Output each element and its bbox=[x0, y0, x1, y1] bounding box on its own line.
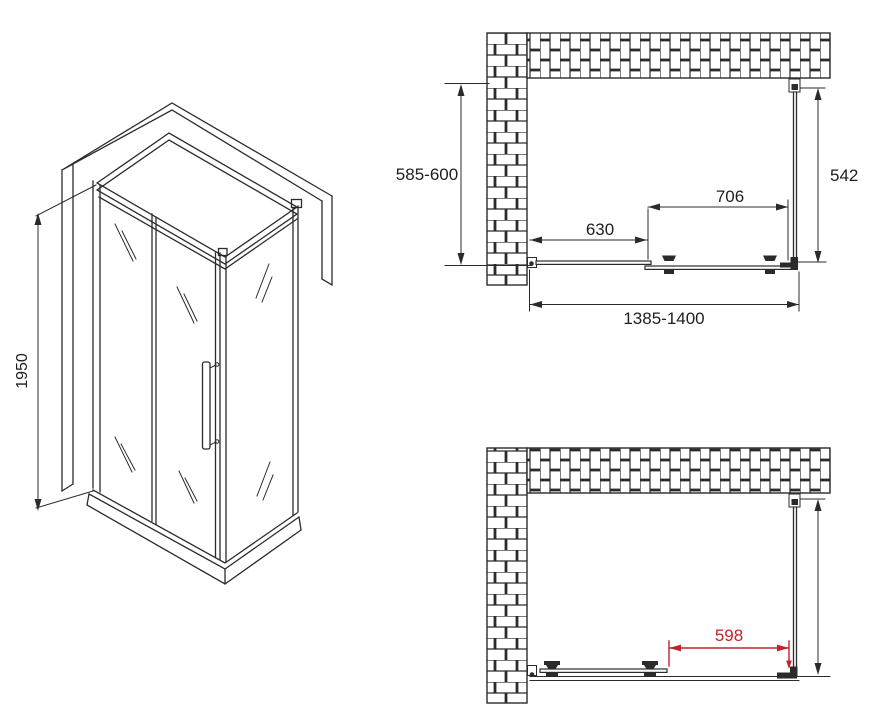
roller-cap bbox=[544, 661, 560, 665]
dimension-side-panel: 542 bbox=[797, 88, 858, 263]
brick-wall-band bbox=[527, 33, 830, 78]
dimension-opening: 598 bbox=[669, 626, 792, 669]
opening-dimension-label: 598 bbox=[715, 626, 743, 645]
roller-right bbox=[763, 256, 777, 275]
width-dimension-label: 1385-1400 bbox=[623, 309, 704, 328]
front-face-profiles bbox=[93, 181, 226, 562]
dimension-lines bbox=[797, 88, 826, 262]
brick-wall-column bbox=[487, 33, 527, 285]
bracket-block bbox=[792, 84, 799, 90]
sliding-glass-panel-open bbox=[540, 669, 667, 672]
arrowhead-left-icon bbox=[530, 301, 542, 308]
isometric-view: 1950 bbox=[14, 103, 332, 584]
dimension-door: 706 bbox=[648, 187, 788, 260]
arrowhead-down-icon bbox=[458, 253, 465, 265]
arrowhead-right-icon bbox=[635, 237, 647, 244]
roller-clamp-bottom bbox=[664, 269, 674, 274]
dimension-lines bbox=[648, 200, 788, 260]
shower-tray bbox=[87, 490, 301, 584]
bracket-block bbox=[792, 499, 799, 505]
brick-wall-band bbox=[527, 448, 830, 493]
arrowhead-up-icon bbox=[815, 88, 822, 100]
door-dimension-label: 706 bbox=[716, 187, 744, 206]
walls-plan bbox=[487, 448, 830, 703]
arrowhead-left-icon bbox=[669, 645, 681, 652]
corner-connector-block bbox=[790, 667, 798, 677]
roller-cap bbox=[642, 661, 658, 665]
dimension-side-unlabeled bbox=[800, 499, 825, 675]
arrowhead-left-icon bbox=[530, 237, 542, 244]
fixed-panel-dimension-label: 630 bbox=[586, 220, 614, 239]
dimension-width: 1385-1400 bbox=[530, 270, 800, 328]
shower-enclosure-drawing: 1950 bbox=[0, 0, 869, 716]
arrowhead-down-icon bbox=[815, 663, 822, 675]
roller-clamp-top bbox=[763, 256, 777, 262]
brick-wall-column bbox=[487, 448, 527, 703]
roller-clamp-bottom bbox=[765, 269, 775, 274]
plan-view-open: 598 bbox=[487, 448, 830, 703]
depth-dimension-label: 585-600 bbox=[396, 165, 458, 184]
fixed-glass-panel bbox=[536, 261, 651, 264]
sliding-glass-panel bbox=[645, 266, 792, 269]
arrowhead-up-icon bbox=[35, 213, 42, 225]
dimension-lines bbox=[800, 499, 825, 671]
roller-clamp-bottom bbox=[644, 673, 656, 677]
dimension-lines bbox=[36, 185, 96, 508]
arrowhead-up-icon bbox=[458, 84, 465, 96]
side-panel-plan bbox=[794, 507, 797, 673]
side-panel-plan bbox=[794, 92, 797, 262]
arrowhead-up-icon bbox=[815, 499, 822, 511]
dimension-fixed-panel: 630 bbox=[530, 209, 648, 259]
side-panel-edge bbox=[293, 206, 298, 515]
door-handle bbox=[203, 362, 219, 449]
arrowhead-down-icon bbox=[35, 499, 42, 511]
roller-clamp-top bbox=[662, 256, 676, 262]
arrowhead-right-icon bbox=[787, 301, 799, 308]
dimension-height: 1950 bbox=[14, 185, 96, 511]
enclosure-plan bbox=[528, 79, 801, 274]
bracket-pin bbox=[530, 672, 535, 677]
tray-outline bbox=[87, 490, 301, 584]
glass-reflection-marks bbox=[115, 224, 273, 503]
walls-plan bbox=[487, 33, 830, 285]
room-walls-3d bbox=[62, 103, 332, 491]
technical-drawing-page: 1950 bbox=[0, 0, 869, 716]
height-dimension-label: 1950 bbox=[14, 353, 31, 389]
handle-bar bbox=[203, 362, 211, 449]
arrowhead-right-icon bbox=[777, 645, 789, 652]
arrowhead-down-icon bbox=[815, 251, 822, 263]
side-panel-dimension-label: 542 bbox=[830, 166, 858, 185]
plan-view-closed: 585-600 630 706 542 1385-1400 bbox=[396, 33, 859, 328]
roller-clamp-bottom bbox=[546, 673, 558, 677]
enclosure-plan bbox=[528, 494, 831, 681]
arrowhead-right-icon bbox=[776, 204, 788, 211]
arrowhead-left-icon bbox=[648, 204, 660, 211]
roller-left bbox=[662, 256, 676, 275]
dimension-lines bbox=[530, 270, 800, 311]
wall-corner-edges bbox=[62, 103, 332, 491]
